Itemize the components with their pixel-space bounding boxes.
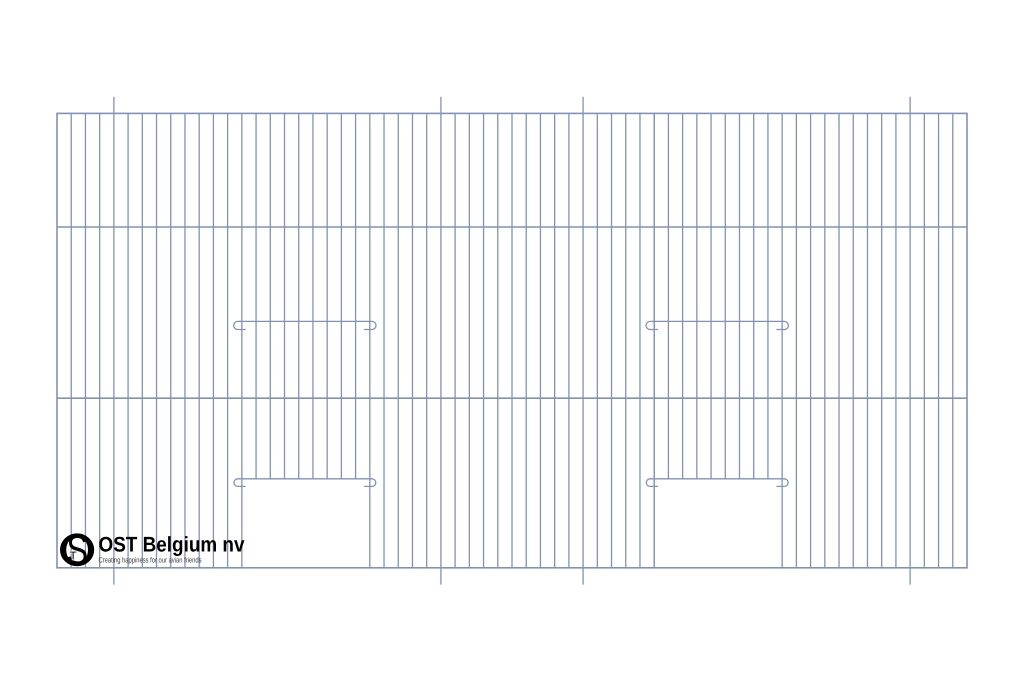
- svg-text:T: T: [70, 551, 77, 563]
- svg-text:Creating happiness for our avi: Creating happiness for our avian friends: [99, 556, 202, 565]
- svg-text:S: S: [67, 526, 89, 573]
- svg-text:OST Belgium nv: OST Belgium nv: [99, 534, 245, 557]
